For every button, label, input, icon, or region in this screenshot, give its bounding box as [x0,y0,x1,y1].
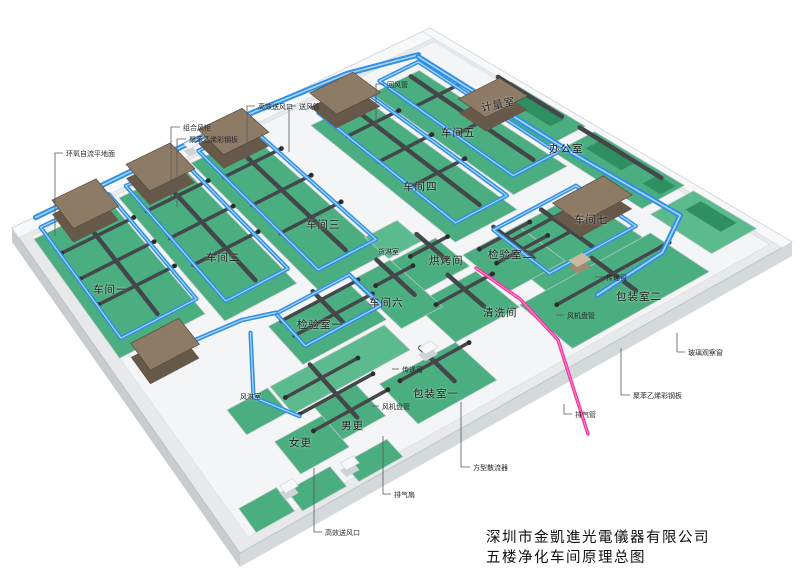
room-label-workshop-1: 车间一 [93,282,128,297]
callout-hepa-outlet-top: 高效送风口 [258,102,293,112]
company-name: 深圳市金凱進光電儀器有限公司 [486,528,710,548]
drawing-canvas: 车间一 车间二 车间三 车间四 车间五 车间六 车间七 计量室 办公室 检验室一… [0,0,800,587]
callout-return-duct: 回风管 [387,80,408,90]
callout-square-diffuser: 方型散流器 [473,463,508,473]
room-label-inspection-1: 检验室一 [297,317,343,332]
callout-exhaust-fan: 排气扇 [394,490,415,500]
room-label-cargo-shower: 货淋室 [378,247,399,257]
room-label-inspection-2: 检验室二 [488,247,534,262]
room-label-workshop-2: 车间二 [206,250,241,265]
room-label-office: 办公室 [549,141,584,156]
room-label-workshop-7: 车间七 [574,212,609,227]
title-block: 深圳市金凱進光電儀器有限公司 五楼净化车间原理总图 [486,528,710,568]
room-label-baking: 烘烤间 [429,253,464,268]
room-label-workshop-4: 车间四 [403,179,438,194]
callout-supply-duct: 送风管 [299,102,320,112]
callout-fan-coil-mid: 风机盘管 [382,402,410,412]
room-label-women-change: 女更 [289,435,312,450]
callout-steel-panel-top: 聚苯乙烯彩钢板 [189,135,238,145]
room-label-workshop-5: 车间五 [441,125,476,140]
room-label-workshop-3: 车间三 [306,217,341,232]
drawing-title: 五楼净化车间原理总图 [486,548,710,568]
callout-fan-coil-right: 风机盘管 [567,311,595,321]
room-label-packing-1: 包装室一 [413,386,459,401]
callout-pass-window-mid: 传递窗 [402,365,423,375]
room-label-cleaning: 清洗间 [483,305,518,320]
callout-glass-window: 玻璃观察窗 [688,348,723,358]
callout-air-handling-unit: 组合风柜 [183,123,211,133]
callout-steel-panel-right: 聚苯乙烯彩钢板 [633,391,682,401]
callout-hepa-outlet-bottom: 高效送风口 [325,528,360,538]
callout-epoxy-floor: 环氧自流平地面 [66,149,115,159]
room-label-workshop-6: 车间六 [369,295,404,310]
room-label-packing-2: 包装室二 [616,289,662,304]
callout-exhaust-pipe: 排气管 [575,410,596,420]
room-label-air-shower: 风淋室 [240,392,261,402]
callout-pass-window-right: 传递窗 [606,273,627,283]
room-label-men-change: 男更 [341,418,364,433]
